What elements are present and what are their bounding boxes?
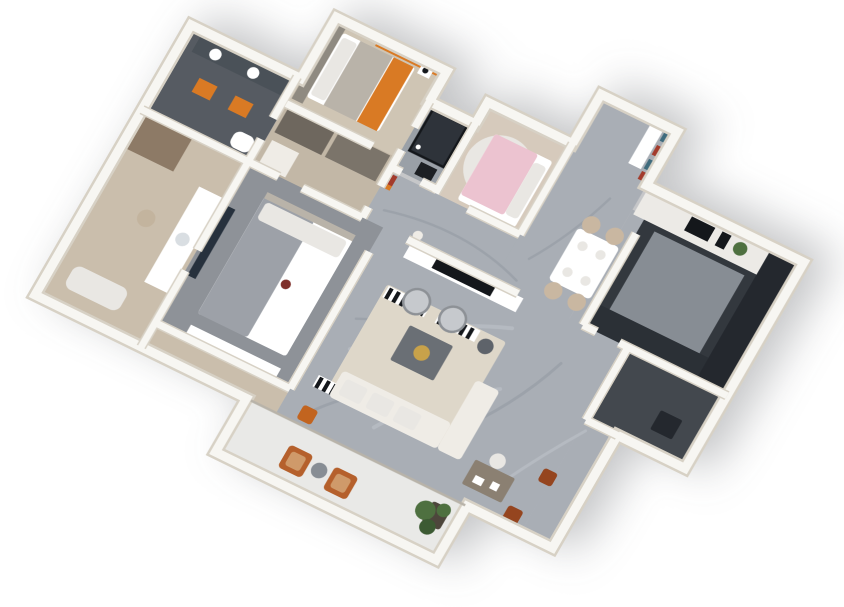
apartment-scene bbox=[4, 0, 835, 607]
floorplan-render bbox=[0, 0, 844, 607]
screenshot-canvas bbox=[0, 0, 844, 607]
